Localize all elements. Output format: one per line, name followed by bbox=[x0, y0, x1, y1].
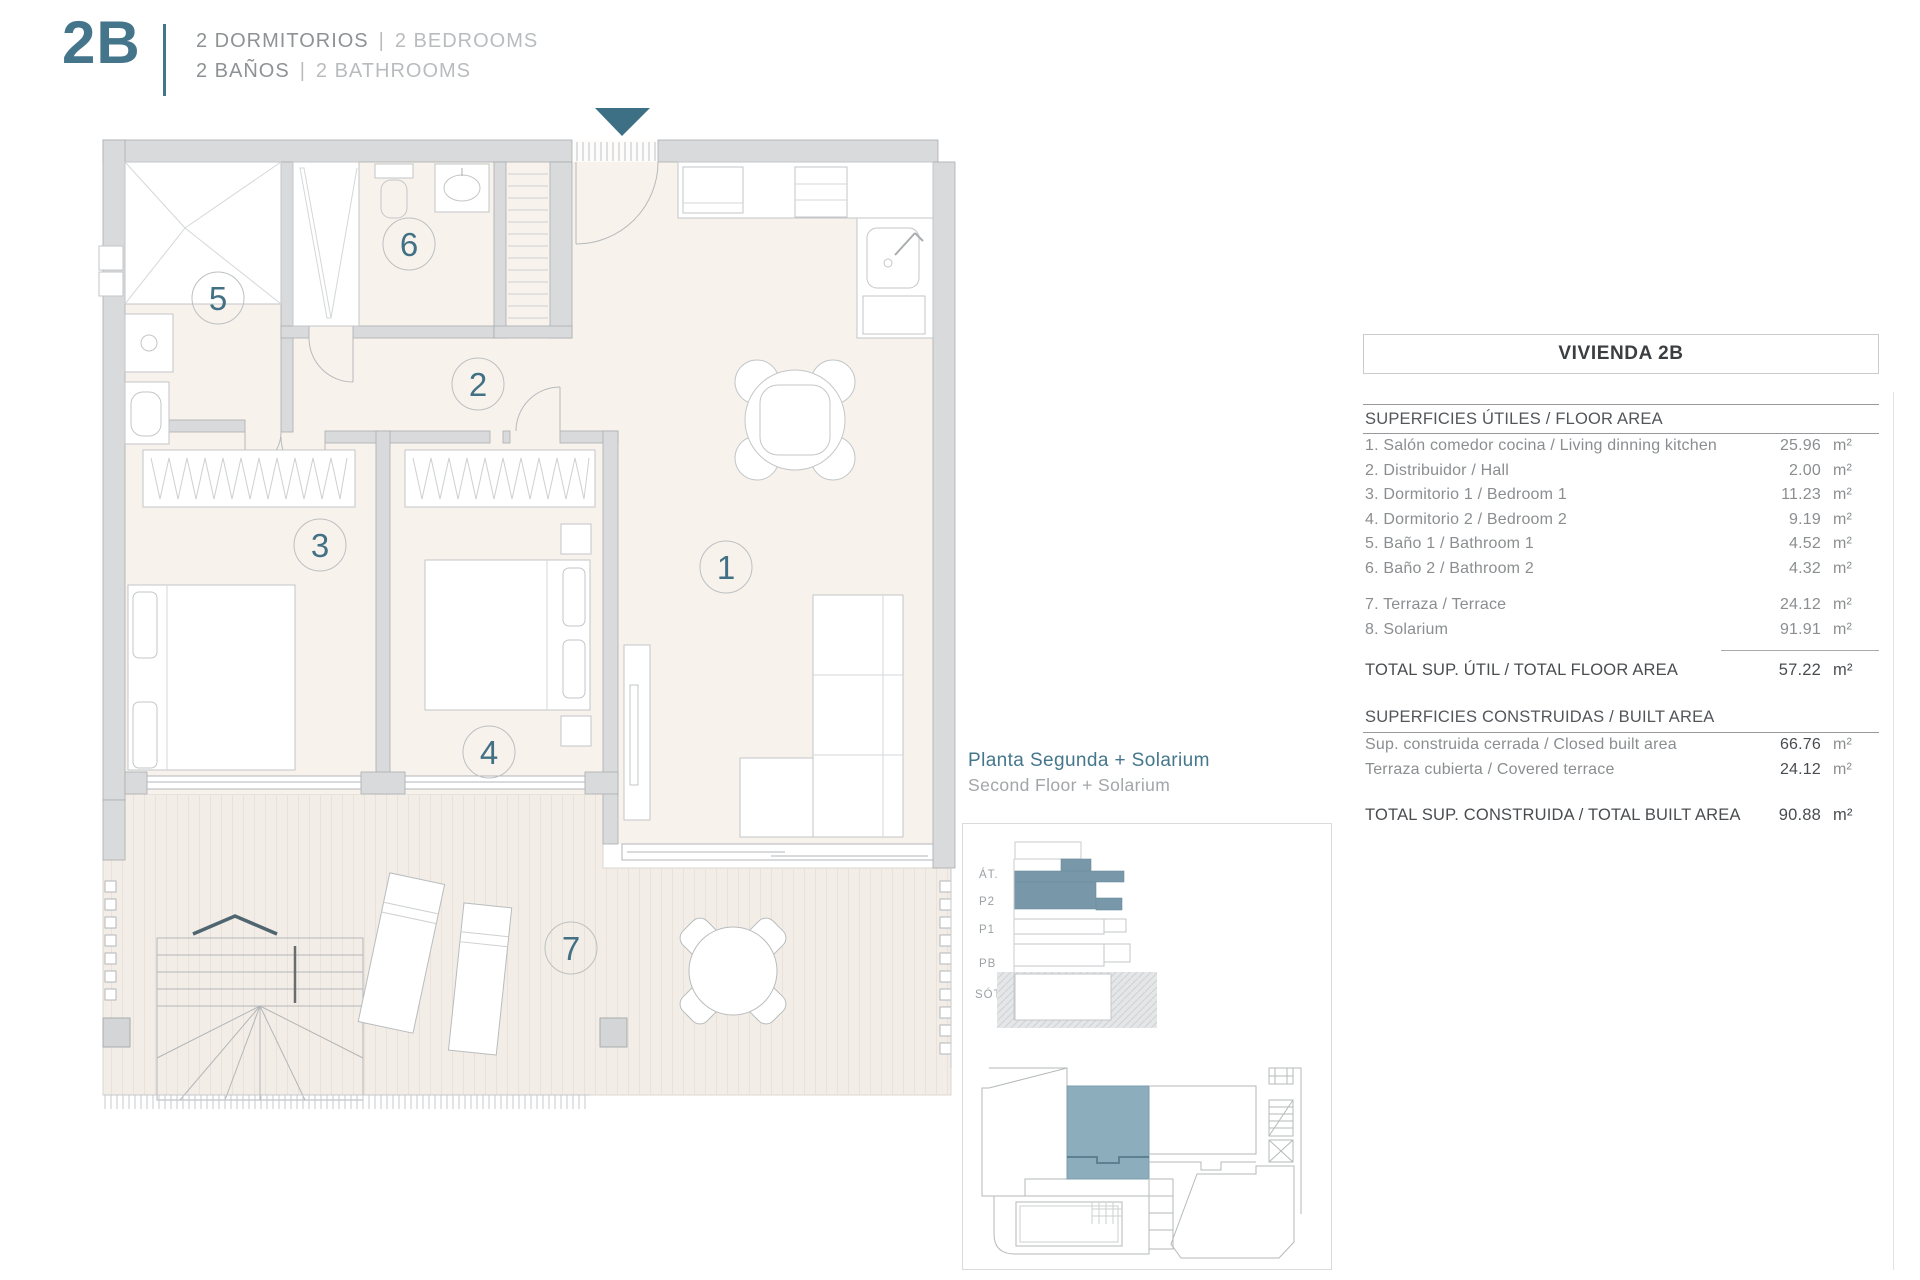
svg-text:6: 6 bbox=[400, 226, 418, 263]
keyplan-box: ÁT. P2 P1 PB SÓT. bbox=[962, 823, 1332, 1270]
svg-text:1: 1 bbox=[717, 549, 735, 586]
site-plan bbox=[982, 1068, 1301, 1258]
table-row: Terraza cubierta / Covered terrace24.12m… bbox=[1363, 758, 1879, 783]
keyplan-diagram: ÁT. P2 P1 PB SÓT. bbox=[963, 824, 1331, 1267]
unit-code-badge: 2B bbox=[62, 8, 141, 77]
table-row: 8. Solarium91.91m² bbox=[1363, 618, 1879, 643]
floor-plan: 1 2 3 4 5 6 7 bbox=[95, 100, 975, 1130]
table-row: 6. Baño 2 / Bathroom 24.32m² bbox=[1363, 557, 1879, 582]
keyplan-title: Planta Segunda + Solarium bbox=[968, 750, 1210, 772]
table-title: VIVIENDA 2B bbox=[1363, 334, 1879, 374]
table-row: 4. Dormitorio 2 / Bedroom 29.19m² bbox=[1363, 508, 1879, 533]
svg-text:2: 2 bbox=[469, 366, 487, 403]
table-row: 1. Salón comedor cocina / Living dinning… bbox=[1363, 434, 1879, 459]
caption-separator: | bbox=[379, 30, 385, 52]
bathrooms-caption: 2 BAÑOS|2 BATHROOMS bbox=[196, 60, 471, 83]
floor-label-p2: P2 bbox=[979, 896, 995, 908]
bedroom2-furniture bbox=[405, 450, 595, 746]
svg-text:4: 4 bbox=[480, 734, 498, 771]
table-row: 7. Terraza / Terrace24.12m² bbox=[1363, 593, 1879, 618]
terrace-edge-hatch bbox=[103, 1095, 590, 1109]
section-built-area: SUPERFICIES CONSTRUIDAS / BUILT AREA bbox=[1363, 708, 1879, 733]
bathrooms-caption-es: 2 BAÑOS bbox=[196, 60, 290, 82]
terrace-table bbox=[676, 914, 790, 1028]
bathrooms-caption-en: 2 BATHROOMS bbox=[316, 60, 471, 82]
bedrooms-caption: 2 DORMITORIOS|2 BEDROOMS bbox=[196, 30, 538, 53]
entrance-arrow-icon bbox=[595, 108, 650, 136]
header-divider bbox=[163, 24, 166, 96]
area-table: VIVIENDA 2B SUPERFICIES ÚTILES / FLOOR A… bbox=[1363, 334, 1879, 829]
highlighted-floors bbox=[1014, 859, 1124, 910]
table-row: 2. Distribuidor / Hall2.00m² bbox=[1363, 459, 1879, 484]
terrace-pillar bbox=[103, 1018, 130, 1047]
bedrooms-caption-en: 2 BEDROOMS bbox=[395, 30, 538, 52]
floor-label-atico: ÁT. bbox=[979, 868, 999, 881]
table-row: 3. Dormitorio 1 / Bedroom 111.23m² bbox=[1363, 483, 1879, 508]
building-section: ÁT. P2 P1 PB SÓT. bbox=[975, 842, 1157, 1028]
svg-text:5: 5 bbox=[209, 280, 227, 317]
total-floor-area-row: TOTAL SUP. ÚTIL / TOTAL FLOOR AREA57.22m… bbox=[1363, 657, 1879, 684]
entrance-threshold bbox=[574, 140, 658, 162]
table-row: 5. Baño 1 / Bathroom 14.52m² bbox=[1363, 532, 1879, 557]
floor-label-p1: P1 bbox=[979, 924, 995, 936]
highlighted-unit bbox=[1067, 1086, 1149, 1179]
total-built-area-row: TOTAL SUP. CONSTRUIDA / TOTAL BUILT AREA… bbox=[1363, 802, 1879, 829]
keyplan-subtitle: Second Floor + Solarium bbox=[968, 775, 1170, 796]
section-floor-area: SUPERFICIES ÚTILES / FLOOR AREA bbox=[1363, 404, 1879, 434]
terrace-pillar bbox=[600, 1018, 627, 1047]
svg-text:7: 7 bbox=[562, 930, 580, 967]
dining-table bbox=[735, 360, 855, 480]
page-border bbox=[1893, 392, 1894, 1270]
total-rule bbox=[1721, 650, 1879, 657]
caption-separator: | bbox=[300, 60, 306, 82]
floor-label-pb: PB bbox=[979, 958, 996, 970]
bedrooms-caption-es: 2 DORMITORIOS bbox=[196, 30, 369, 52]
table-row: Sup. construida cerrada / Closed built a… bbox=[1363, 733, 1879, 758]
svg-text:3: 3 bbox=[311, 527, 329, 564]
